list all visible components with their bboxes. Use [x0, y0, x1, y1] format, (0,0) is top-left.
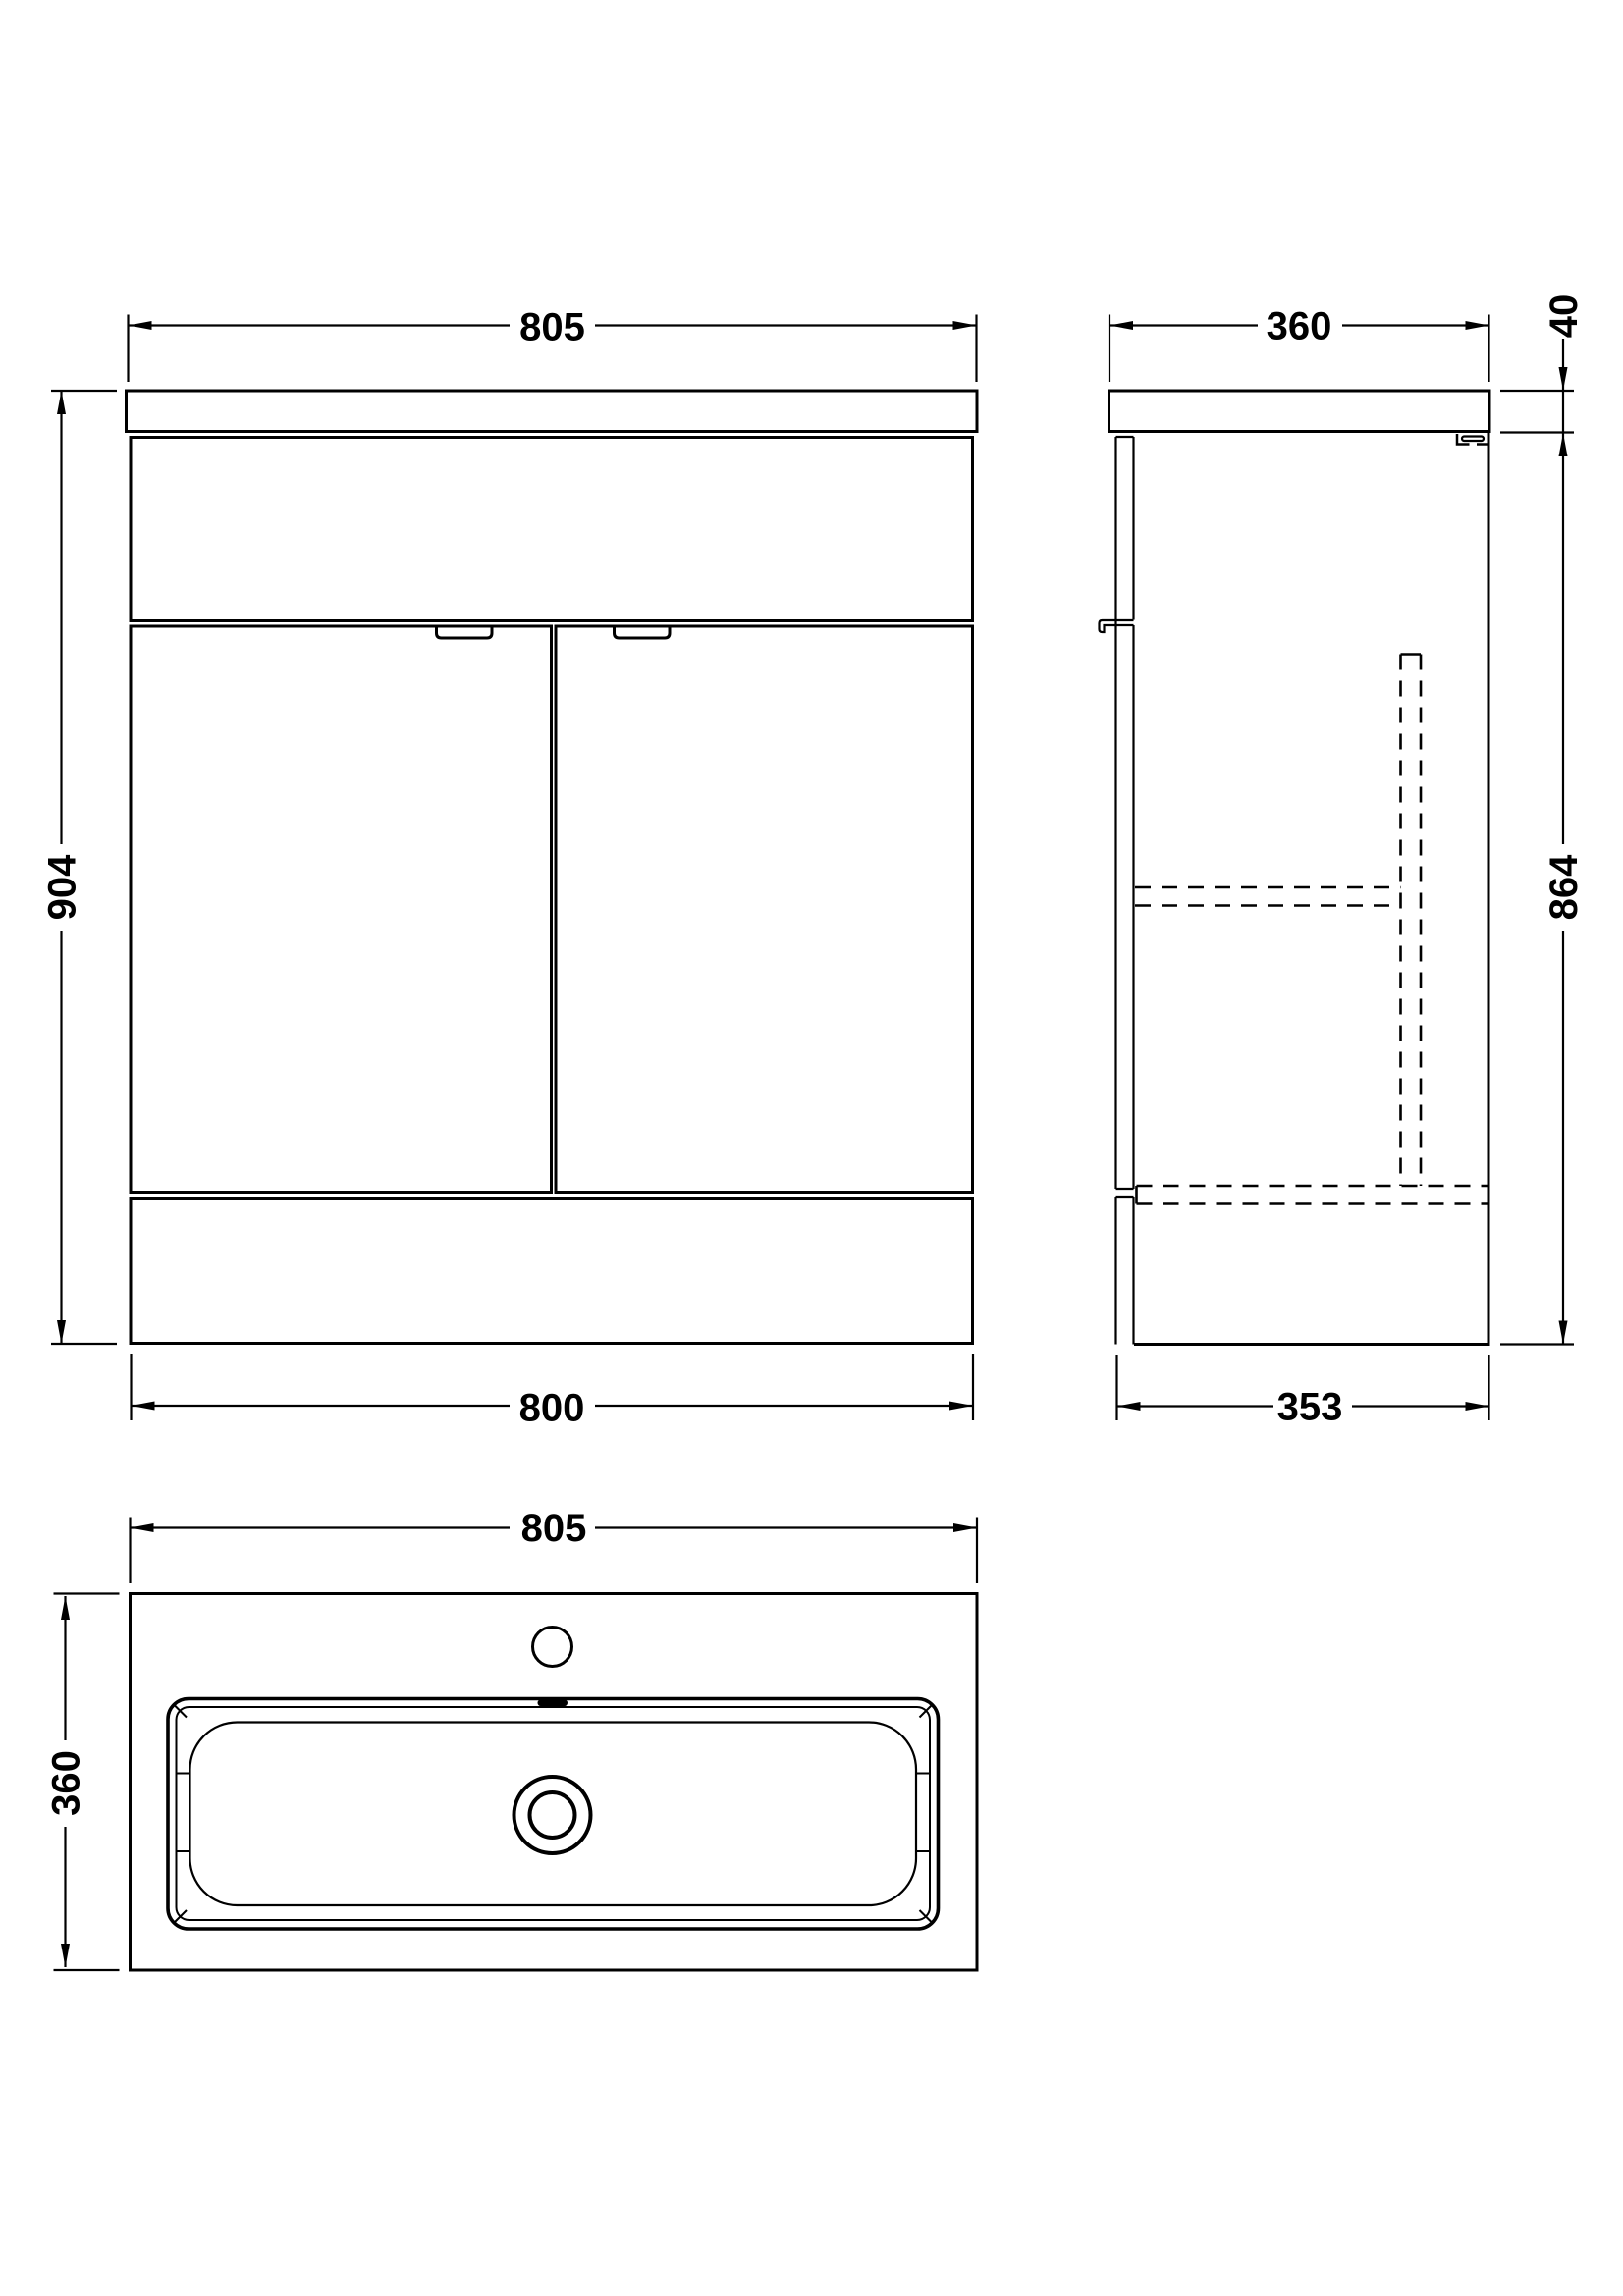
svg-text:904: 904 [41, 854, 84, 920]
svg-text:800: 800 [519, 1387, 585, 1430]
svg-text:353: 353 [1277, 1386, 1343, 1429]
svg-text:360: 360 [1267, 305, 1332, 348]
svg-text:864: 864 [1542, 854, 1586, 920]
svg-text:40: 40 [1542, 294, 1586, 339]
svg-text:805: 805 [519, 306, 585, 349]
svg-text:805: 805 [521, 1507, 587, 1550]
svg-text:360: 360 [45, 1750, 88, 1816]
